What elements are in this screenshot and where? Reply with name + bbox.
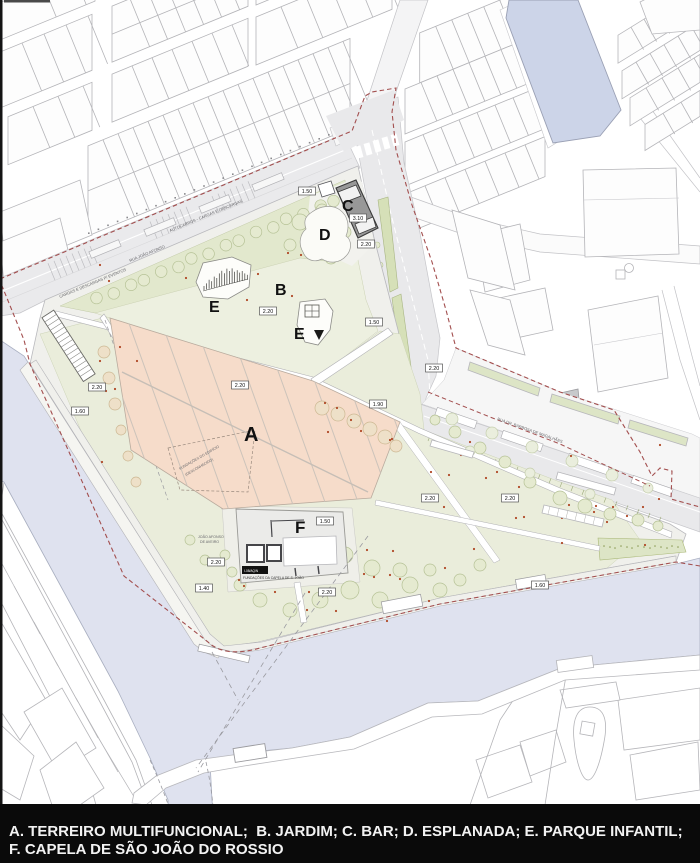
svg-text:2.20: 2.20: [429, 366, 440, 372]
svg-text:1.50: 1.50: [369, 320, 380, 326]
svg-text:B: B: [275, 282, 287, 299]
svg-text:A: A: [244, 424, 258, 446]
svg-text:E: E: [209, 299, 220, 316]
svg-text:2.20: 2.20: [425, 496, 436, 502]
svg-text:1.50: 1.50: [320, 519, 331, 525]
svg-text:F: F: [295, 518, 305, 537]
svg-text:2.20: 2.20: [235, 383, 246, 389]
svg-text:2.20: 2.20: [263, 309, 274, 315]
svg-text:C: C: [342, 198, 354, 215]
svg-text:1.40: 1.40: [199, 586, 210, 592]
svg-text:1.90: 1.90: [373, 402, 384, 408]
svg-text:1.60: 1.60: [75, 409, 86, 415]
svg-text:1.60: 1.60: [535, 583, 546, 589]
svg-text:E: E: [294, 326, 305, 343]
svg-text:3.10: 3.10: [353, 216, 364, 222]
svg-text:A. TERREIRO MULTIFUNCIONAL; B: A. TERREIRO MULTIFUNCIONAL; B. JARDIM; C…: [9, 823, 683, 840]
svg-text:2.20: 2.20: [505, 496, 516, 502]
svg-text:DE AVEIRO: DE AVEIRO: [200, 540, 219, 544]
svg-text:JOÃO AFONSO: JOÃO AFONSO: [198, 534, 224, 539]
svg-text:2.20: 2.20: [361, 242, 372, 248]
svg-text:2.20: 2.20: [211, 560, 222, 566]
svg-text:F. CAPELA DE SÃO JOÃO DO ROSSI: F. CAPELA DE SÃO JOÃO DO ROSSIO: [9, 840, 284, 858]
svg-text:1.50: 1.50: [302, 189, 313, 195]
svg-text:FUNDAÇÕES DA CAPELA DE S. JOÃO: FUNDAÇÕES DA CAPELA DE S. JOÃO: [243, 575, 304, 580]
svg-text:2.20: 2.20: [92, 385, 103, 391]
svg-text:D: D: [319, 227, 331, 244]
svg-text:I-08/AQ/N: I-08/AQ/N: [244, 569, 259, 573]
svg-text:2.20: 2.20: [322, 590, 333, 596]
